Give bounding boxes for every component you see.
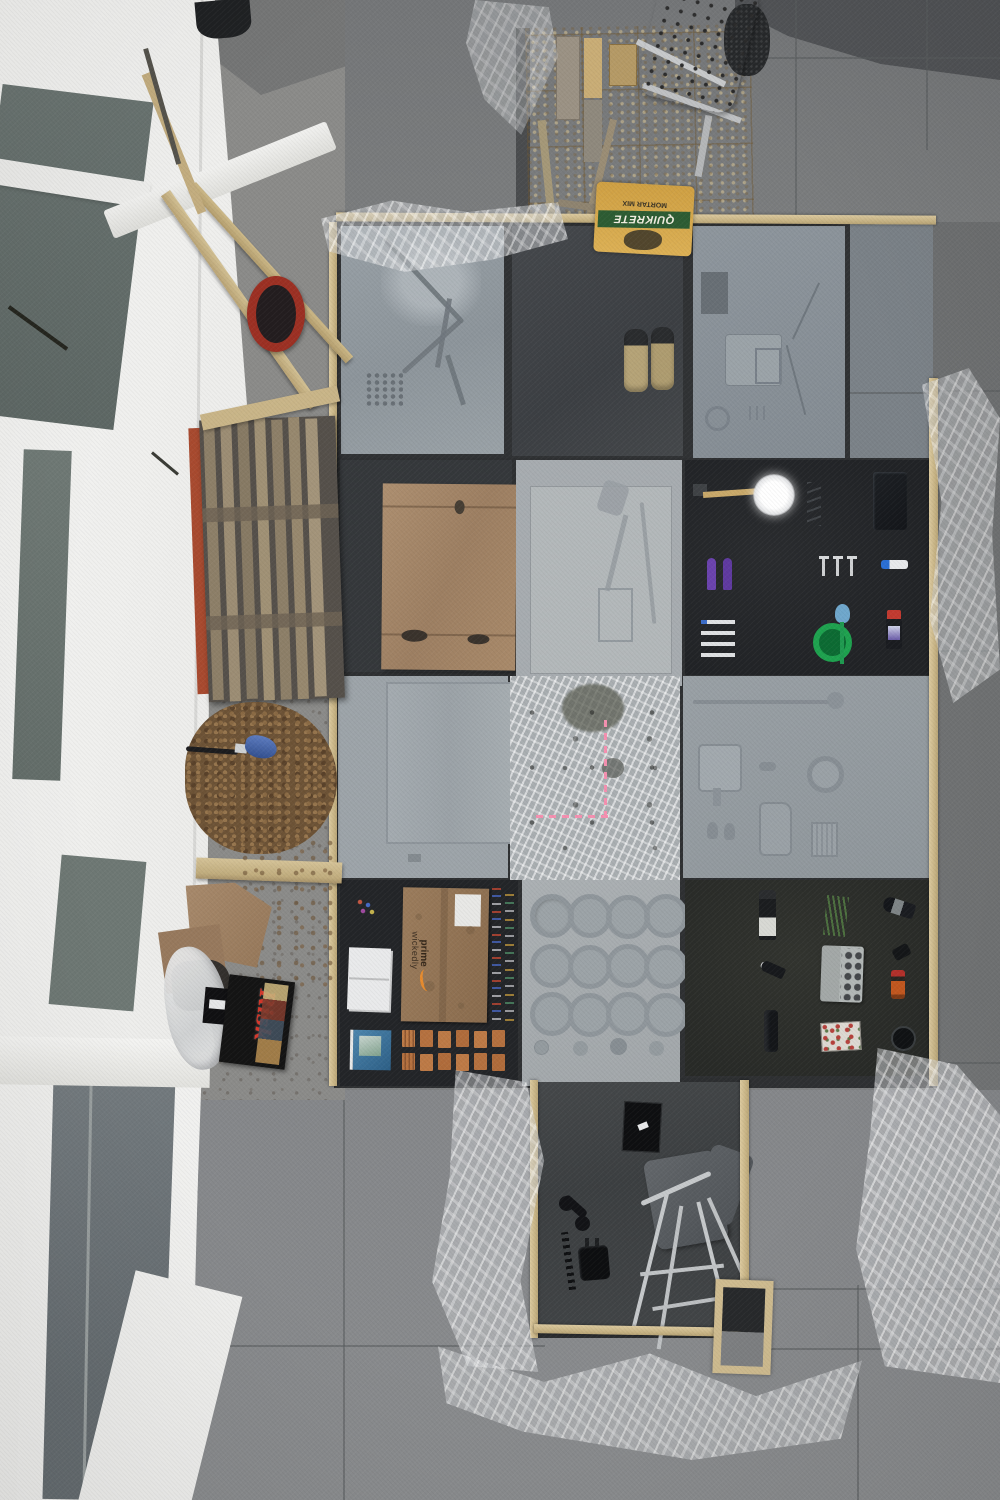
slab-panel-imprint xyxy=(338,676,508,878)
wood-pallet xyxy=(199,416,345,703)
amazon-prime-box: wickedly prime xyxy=(401,887,489,1022)
jug-imprint xyxy=(759,802,792,856)
dark-sponge xyxy=(873,472,907,530)
purple-trowel xyxy=(707,558,716,590)
spray-bottle-cap xyxy=(887,610,901,619)
tall-dark-bottle xyxy=(764,1010,778,1052)
pill-imprint xyxy=(759,762,776,771)
beer-bottle xyxy=(881,895,916,919)
bead-cluster xyxy=(356,898,376,916)
spray-bottle-label xyxy=(888,626,900,640)
phone-cord xyxy=(561,1232,576,1290)
slab-sneakers xyxy=(512,226,683,456)
egg-dots xyxy=(840,948,862,1001)
cardboard-stain xyxy=(401,630,427,642)
hot-sauce-bottle xyxy=(891,970,905,999)
bulb-imprint xyxy=(707,822,718,839)
dustpan-handle-imprint xyxy=(713,788,721,806)
nail-stem xyxy=(822,559,825,576)
small-circle-imprint xyxy=(534,1040,549,1055)
glass-jar xyxy=(891,1026,916,1051)
risk-game-box: Risk xyxy=(219,974,295,1069)
dustpan-imprint xyxy=(698,744,742,792)
rod-ball-imprint xyxy=(827,692,844,709)
book-art xyxy=(359,1036,381,1056)
dark-speckle xyxy=(365,372,403,408)
frame-label xyxy=(637,1121,649,1130)
picture-frame xyxy=(622,1101,663,1153)
wine-bottle xyxy=(759,890,776,940)
photo-canvas: wickedly prime xyxy=(0,0,1000,1500)
green-bowl xyxy=(813,623,852,662)
hardware-bits-column xyxy=(505,894,514,1022)
ring-outline xyxy=(644,993,688,1037)
adapter-prongs xyxy=(585,1238,589,1247)
quikrete-eagle-art xyxy=(623,229,662,251)
slab-bottles-eggs xyxy=(685,880,930,1076)
small-form-concrete xyxy=(722,1287,766,1332)
cardboard-crease xyxy=(383,505,517,508)
rod-imprint xyxy=(693,700,829,704)
penny-stack-row xyxy=(402,1030,415,1047)
small-bottle-tipped xyxy=(760,960,786,980)
brush-imprint xyxy=(811,822,838,857)
white-duster xyxy=(753,474,795,516)
quikrete-product-text: MORTAR MIX xyxy=(596,197,694,209)
panel-imprint xyxy=(386,682,512,844)
cardboard-stain xyxy=(455,500,465,514)
bottom-form-rail-right xyxy=(740,1080,749,1292)
toilet-brush-head xyxy=(835,604,850,623)
quikrete-bag: QUIKRETE MORTAR MIX xyxy=(593,181,695,256)
sneaker-left xyxy=(624,329,648,392)
tile-seam xyxy=(926,0,928,150)
ring-imprint xyxy=(807,756,844,793)
ring-outline xyxy=(644,945,688,989)
imprint-ring xyxy=(705,406,730,431)
plank-gray2 xyxy=(584,100,602,162)
blue-book xyxy=(350,1030,392,1071)
penny-stack-row xyxy=(402,1053,415,1070)
power-adapter xyxy=(578,1245,611,1281)
plank-gray xyxy=(556,36,580,120)
small-form-empty xyxy=(721,1331,764,1366)
imprint-line xyxy=(445,355,466,406)
egg-carton xyxy=(820,945,864,1002)
floral-packet xyxy=(820,1021,861,1052)
sneaker-right xyxy=(651,327,674,390)
small-mark xyxy=(408,854,421,862)
imprint-box-outline xyxy=(755,348,781,384)
imprint-marks xyxy=(749,406,769,420)
plant-sprig xyxy=(823,895,849,937)
red-bucket xyxy=(247,276,305,352)
tile-seam xyxy=(343,1095,345,1500)
tile-seam xyxy=(795,0,797,220)
slab-muffin-rings xyxy=(522,880,680,1086)
plastic-sheet-right-large xyxy=(856,1048,1000,1383)
cardboard-on-slab xyxy=(381,483,517,670)
toothpaste-tube xyxy=(881,560,908,569)
slab-plastic-texture xyxy=(510,676,680,880)
tile-seam xyxy=(745,57,1000,59)
plank-tan xyxy=(584,38,602,98)
patio-tile-patch xyxy=(845,222,933,462)
slab-household-imprints xyxy=(683,676,930,878)
slab-tool-imprints xyxy=(516,460,682,686)
hardware-bits-column xyxy=(492,888,501,1022)
toilet-brush-handle xyxy=(840,622,844,664)
tile-seam xyxy=(857,1285,859,1500)
slab-object-imprints xyxy=(693,226,845,458)
wood-block xyxy=(609,44,637,86)
pink-chalk-line-v xyxy=(604,720,607,818)
quikrete-brand-text: QUIKRETE xyxy=(613,213,674,226)
box-doodles xyxy=(405,891,487,1018)
imprint-wire xyxy=(792,282,820,339)
box-label xyxy=(209,999,226,1009)
dark-item xyxy=(891,943,912,962)
cardboard-stain xyxy=(467,634,489,644)
mulch-pile xyxy=(185,702,337,854)
pink-chalk-line-h xyxy=(536,815,608,818)
slab-amazon-box: wickedly prime xyxy=(340,880,518,1086)
quikrete-green-band: QUIKRETE xyxy=(598,210,691,229)
pallet-slat xyxy=(305,418,327,696)
tile-seam xyxy=(845,392,933,394)
window-glass-mid2 xyxy=(49,855,147,1012)
faint-keys xyxy=(807,482,821,526)
ring-outline xyxy=(644,894,688,938)
dark-dots xyxy=(520,696,670,866)
small-wood-form xyxy=(712,1279,773,1375)
purple-trowel xyxy=(723,558,732,590)
imprint-wire xyxy=(786,345,807,415)
toothbrush xyxy=(701,620,735,624)
imprint-dark-rect xyxy=(701,272,728,314)
handset-mouthpiece xyxy=(575,1216,590,1231)
slab-cleaning-items xyxy=(685,460,930,675)
form-rail-right xyxy=(929,378,938,1086)
box-imprint-outline xyxy=(598,588,633,642)
